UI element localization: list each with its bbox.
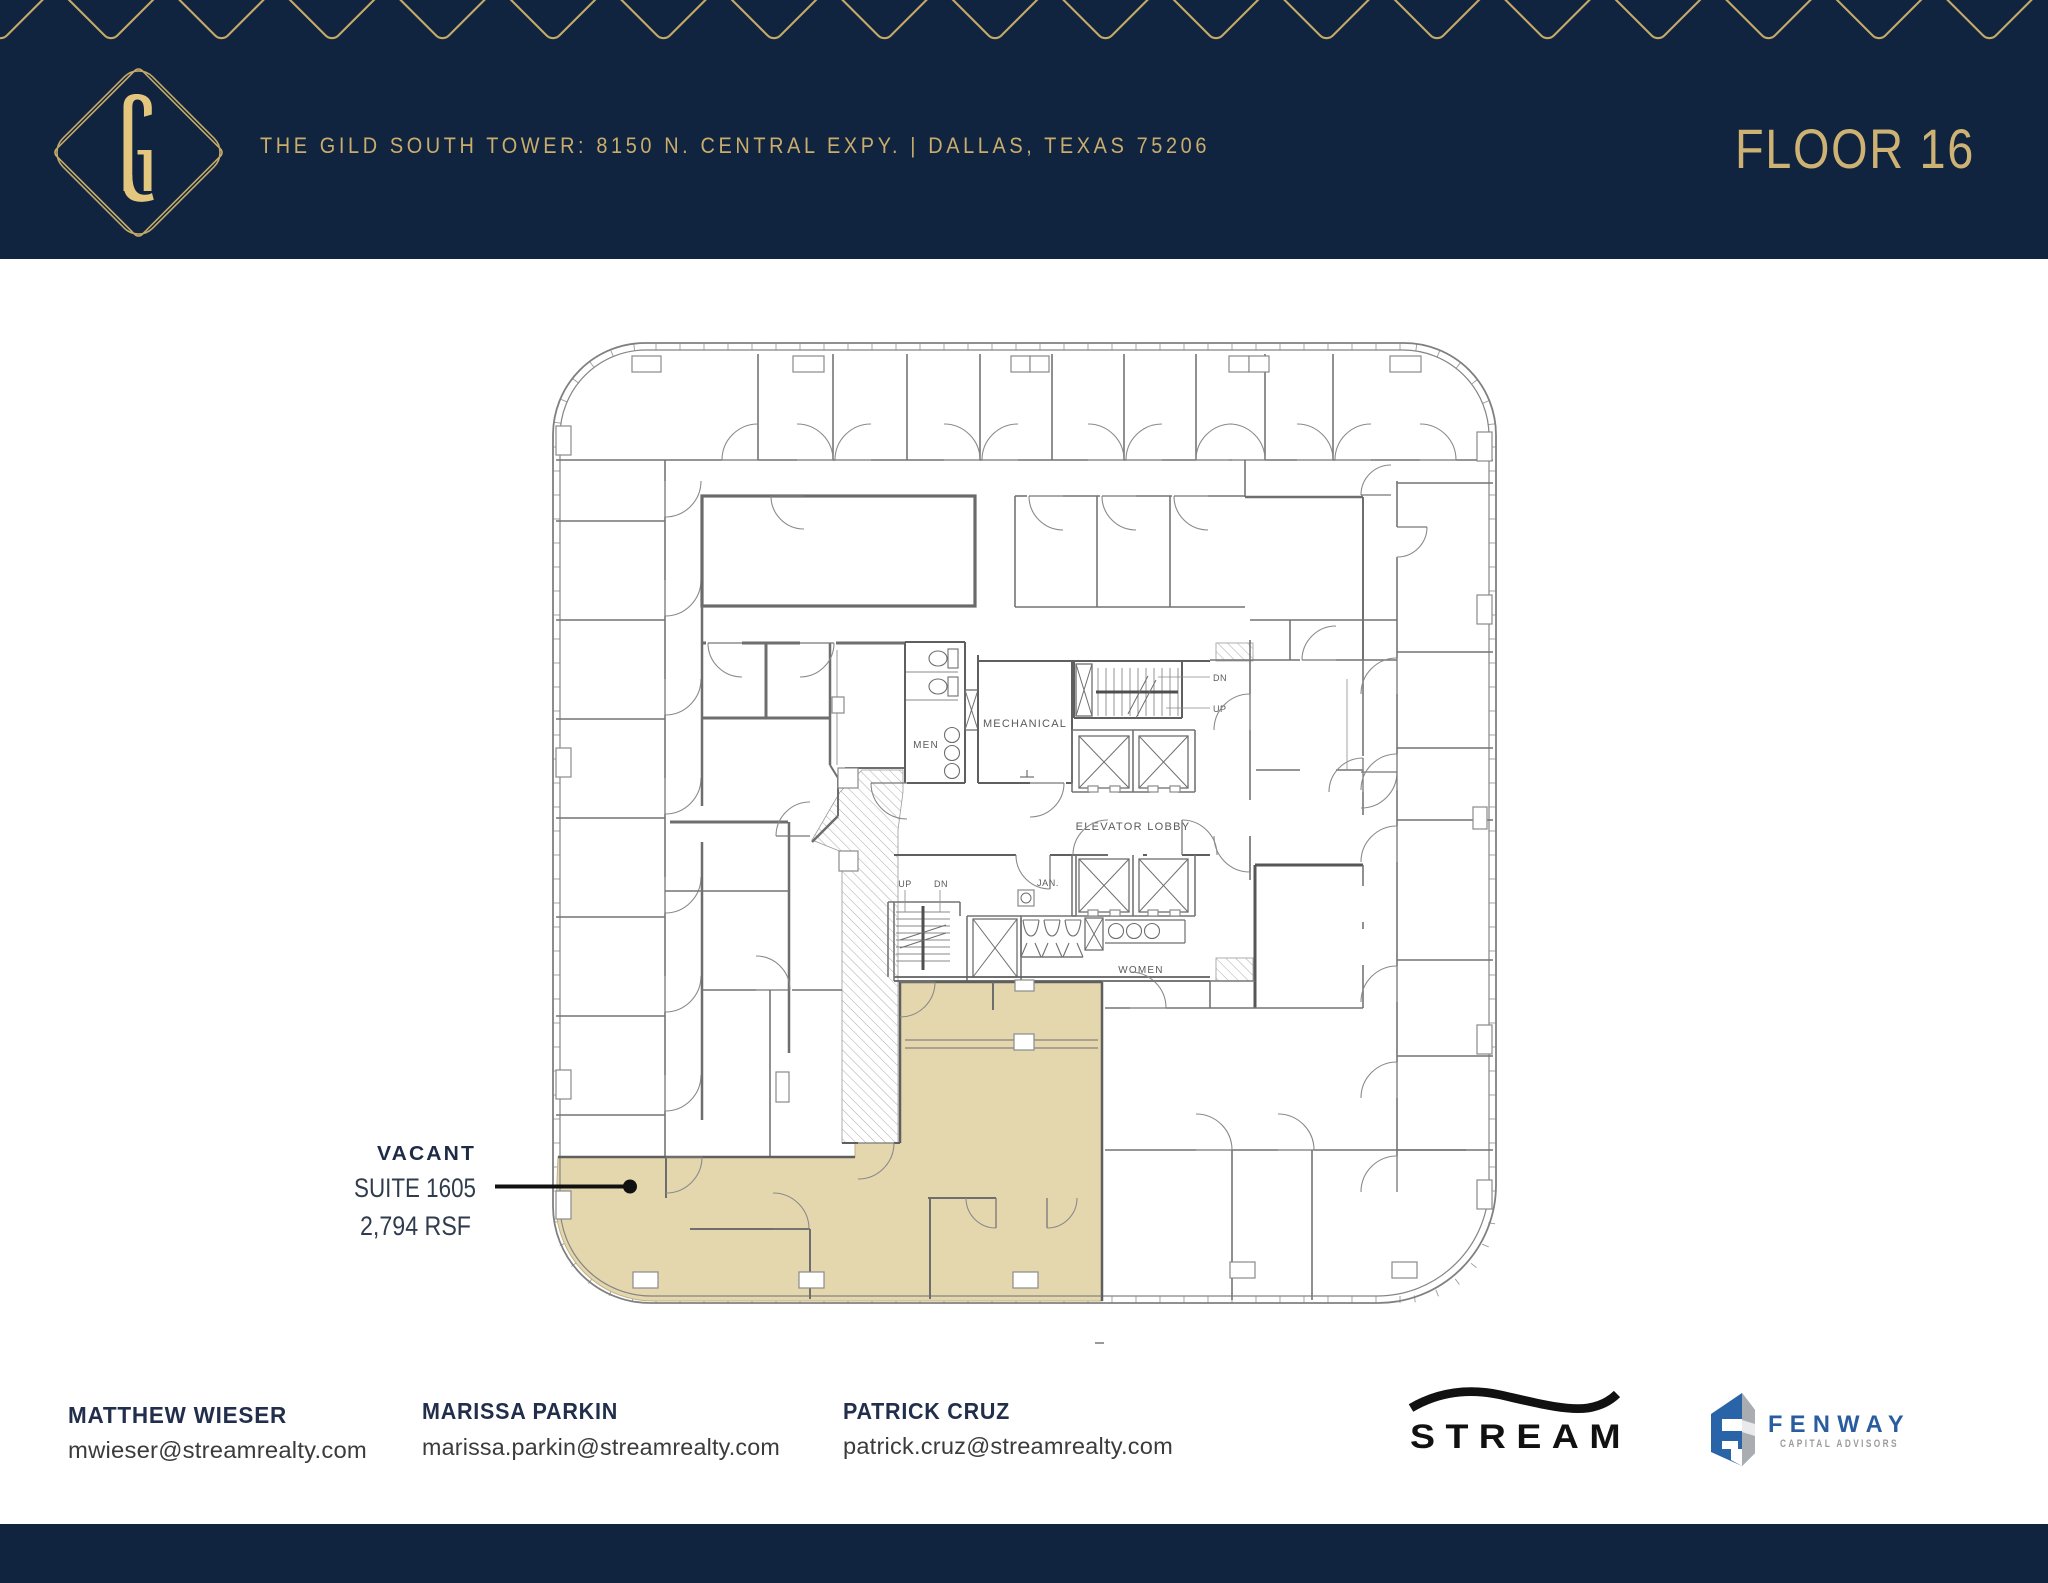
svg-text:MEN: MEN bbox=[913, 740, 939, 751]
svg-text:patrick.cruz@streamrealty.com: patrick.cruz@streamrealty.com bbox=[843, 1433, 1173, 1459]
svg-text:2,794 RSF: 2,794 RSF bbox=[360, 1211, 471, 1241]
svg-text:MATTHEW WIESER: MATTHEW WIESER bbox=[68, 1402, 287, 1428]
svg-text:VACANT: VACANT bbox=[377, 1143, 476, 1165]
svg-text:THE GILD SOUTH TOWER: 8150 N.: THE GILD SOUTH TOWER: 8150 N. CENTRAL EX… bbox=[260, 133, 1210, 158]
svg-text:UP: UP bbox=[898, 879, 912, 889]
svg-text:marissa.parkin@streamrealty.co: marissa.parkin@streamrealty.com bbox=[422, 1434, 780, 1460]
svg-text:MECHANICAL: MECHANICAL bbox=[983, 718, 1067, 730]
svg-text:JAN.: JAN. bbox=[1037, 878, 1059, 888]
svg-text:FLOOR 16: FLOOR 16 bbox=[1735, 117, 1975, 180]
svg-text:WOMEN: WOMEN bbox=[1118, 965, 1163, 976]
svg-text:UP: UP bbox=[1213, 704, 1227, 714]
svg-text:CAPITAL ADVISORS: CAPITAL ADVISORS bbox=[1780, 1438, 1899, 1450]
svg-text:SUITE 1605: SUITE 1605 bbox=[354, 1173, 476, 1203]
svg-text:mwieser@streamrealty.com: mwieser@streamrealty.com bbox=[68, 1437, 367, 1463]
svg-text:MARISSA PARKIN: MARISSA PARKIN bbox=[422, 1398, 618, 1424]
svg-text:DN: DN bbox=[1213, 673, 1227, 683]
svg-text:DN: DN bbox=[934, 879, 948, 889]
svg-text:STREAM: STREAM bbox=[1410, 1418, 1631, 1456]
svg-text:PATRICK CRUZ: PATRICK CRUZ bbox=[843, 1398, 1010, 1424]
svg-text:FENWAY: FENWAY bbox=[1768, 1411, 1911, 1438]
